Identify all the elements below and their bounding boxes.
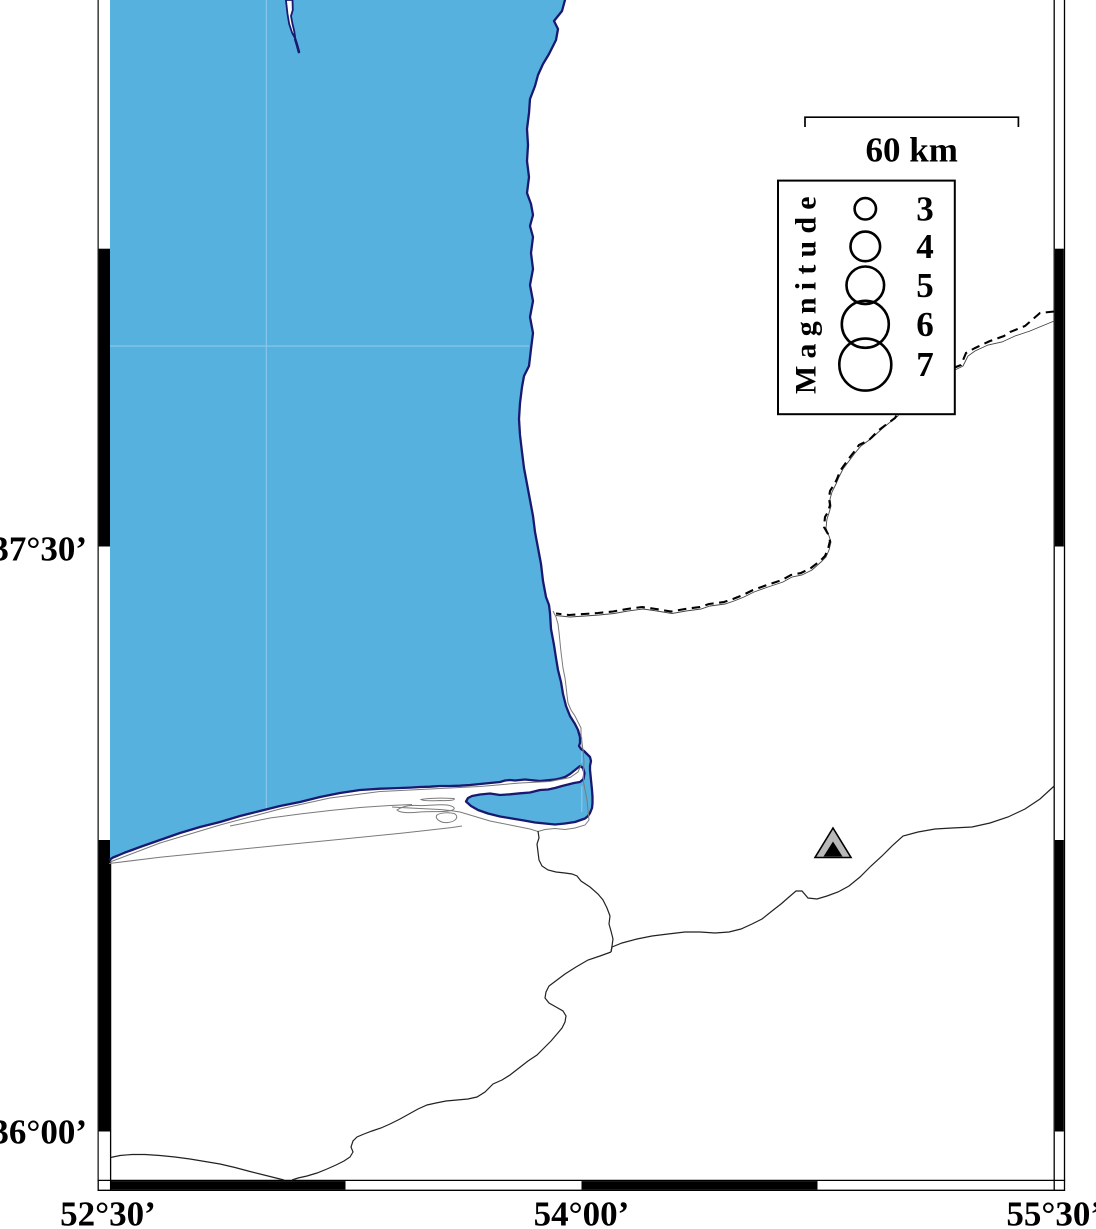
svg-text:Magnitude: Magnitude: [790, 189, 823, 394]
svg-text:60 km: 60 km: [866, 131, 958, 170]
svg-text:6: 6: [916, 305, 934, 344]
svg-text:36°00’: 36°00’: [0, 1113, 87, 1152]
svg-text:54°00’: 54°00’: [534, 1195, 630, 1229]
svg-text:37°30’: 37°30’: [0, 529, 87, 568]
svg-text:4: 4: [916, 227, 934, 266]
svg-text:55°30’: 55°30’: [1006, 1195, 1096, 1229]
svg-text:7: 7: [916, 345, 934, 384]
svg-text:5: 5: [916, 266, 934, 305]
svg-text:52°30’: 52°30’: [60, 1195, 156, 1229]
svg-text:3: 3: [916, 189, 934, 228]
